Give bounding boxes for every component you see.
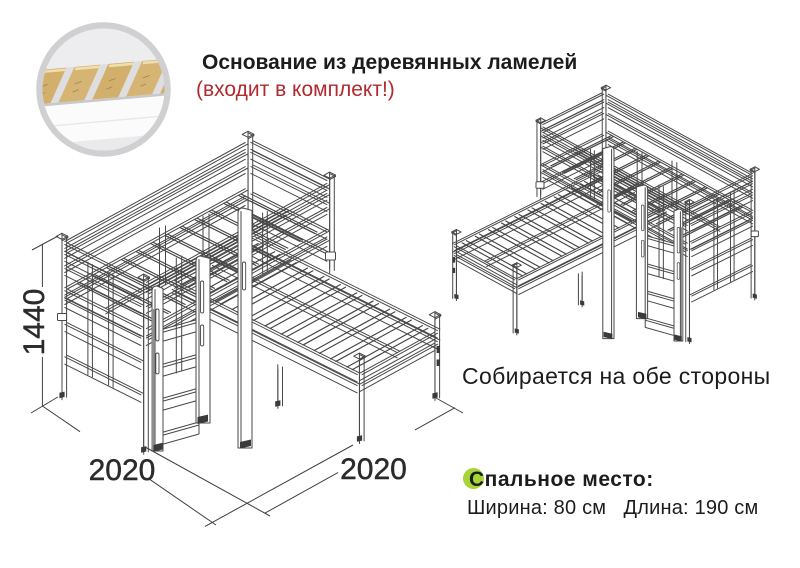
svg-text:2020: 2020	[340, 453, 407, 486]
svg-text:2020: 2020	[89, 454, 156, 487]
svg-text:1440: 1440	[18, 289, 51, 356]
